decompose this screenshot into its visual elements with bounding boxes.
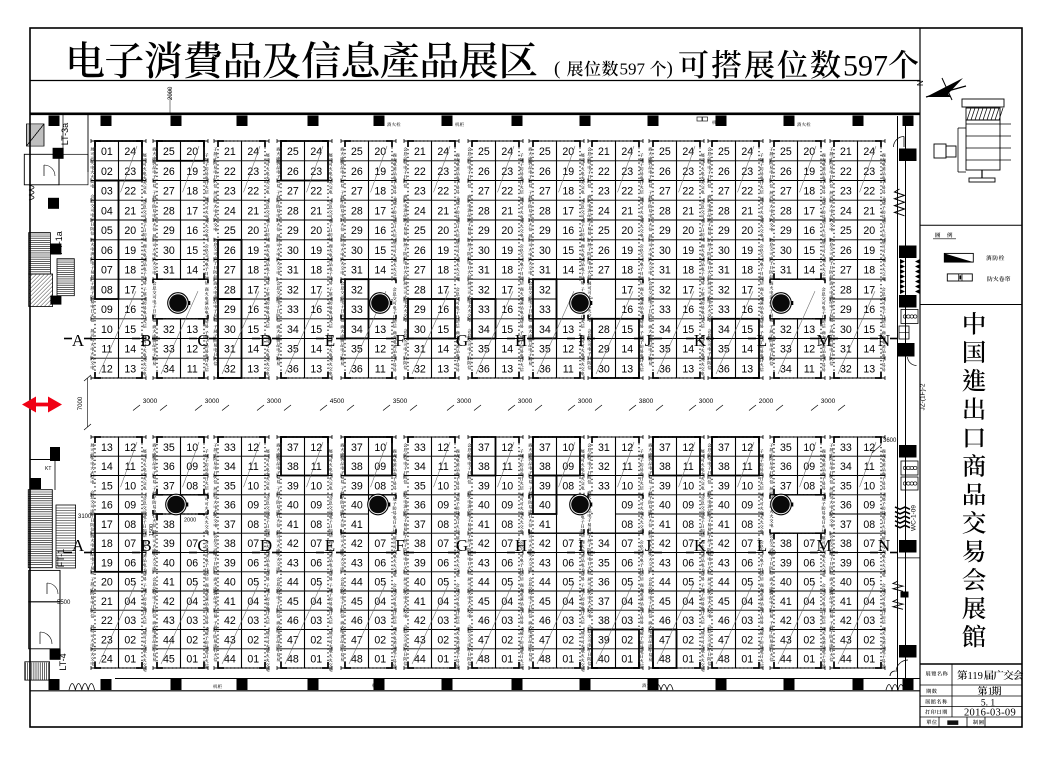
svg-text:25: 25 [780,146,792,158]
svg-text:597: 597 [620,60,646,79]
svg-text:14: 14 [863,344,875,356]
svg-text:23: 23 [101,634,113,646]
svg-text:41: 41 [478,519,490,531]
svg-text:18: 18 [310,265,322,277]
svg-text:26: 26 [478,166,490,178]
svg-text:06: 06 [803,557,815,569]
svg-text:34: 34 [598,538,610,550]
svg-text:15: 15 [247,324,259,336]
svg-text:16: 16 [310,304,322,316]
svg-text:13: 13 [741,364,753,376]
svg-text:3000: 3000 [518,398,533,405]
svg-text:21: 21 [840,146,852,158]
svg-text:13: 13 [101,442,113,454]
svg-text:LT-4: LT-4 [58,653,68,670]
svg-text:14: 14 [186,265,198,277]
svg-text:39: 39 [840,557,852,569]
svg-text:39: 39 [351,480,363,492]
svg-text:07: 07 [621,538,633,550]
svg-text:11: 11 [563,364,574,376]
svg-text:29: 29 [598,344,610,356]
svg-text:06: 06 [186,557,198,569]
svg-text:33: 33 [539,304,551,316]
svg-text:10: 10 [437,480,449,492]
svg-text:37: 37 [539,442,551,454]
svg-text:N: N [878,536,890,555]
svg-text:): ) [667,59,673,80]
svg-text:19: 19 [310,245,322,257]
svg-text:32: 32 [780,324,792,336]
svg-text:10: 10 [310,480,322,492]
svg-text:06: 06 [863,557,875,569]
svg-text:18: 18 [124,265,136,277]
svg-text:31: 31 [539,265,551,277]
svg-text:18: 18 [682,265,694,277]
svg-text:31: 31 [478,265,490,277]
svg-text:02: 02 [621,634,633,646]
svg-text:32: 32 [659,285,671,297]
svg-text:(: ( [554,59,560,80]
svg-text:42: 42 [351,538,363,550]
svg-text:38: 38 [659,461,671,473]
svg-text:46: 46 [718,615,730,627]
svg-text:32: 32 [478,285,490,297]
svg-text:22: 22 [101,615,113,627]
svg-text:26: 26 [539,166,551,178]
svg-text:29: 29 [224,304,236,316]
svg-text:10: 10 [124,480,136,492]
svg-text:29: 29 [659,225,671,237]
svg-text:10: 10 [863,480,875,492]
svg-text:06: 06 [101,245,113,257]
svg-text:25: 25 [287,146,299,158]
svg-text:29: 29 [840,304,852,316]
svg-text:46: 46 [539,615,551,627]
svg-text:LT-3a: LT-3a [60,123,70,145]
svg-text:09: 09 [741,500,753,512]
svg-text:07: 07 [863,538,875,550]
svg-text:22: 22 [414,166,426,178]
svg-text:26: 26 [718,166,730,178]
svg-text:1: 1 [988,687,993,698]
svg-text:36: 36 [840,500,852,512]
svg-text:32: 32 [598,461,610,473]
svg-text:36: 36 [598,577,610,589]
svg-text:27: 27 [780,186,792,198]
svg-text:35: 35 [718,344,730,356]
svg-text:07: 07 [101,265,113,277]
svg-text:08: 08 [562,480,574,492]
svg-text:3800: 3800 [639,398,654,405]
svg-text:28: 28 [840,285,852,297]
svg-text:38: 38 [598,615,610,627]
svg-text:31: 31 [163,265,175,277]
svg-text:38: 38 [163,519,175,531]
svg-text:42: 42 [287,538,299,550]
svg-text:30: 30 [718,245,730,257]
svg-text:26: 26 [780,166,792,178]
svg-text:A: A [72,331,85,350]
svg-text:04: 04 [310,596,322,608]
svg-text:40: 40 [539,500,551,512]
svg-text:34: 34 [478,324,490,336]
svg-text:10: 10 [186,442,198,454]
svg-text:22: 22 [741,186,753,198]
svg-text:04: 04 [682,596,694,608]
svg-text:21: 21 [741,206,753,218]
svg-text:07: 07 [803,538,815,550]
svg-text:44: 44 [539,577,551,589]
svg-text:N: N [916,80,925,86]
svg-text:34: 34 [224,461,236,473]
svg-text:39: 39 [780,557,792,569]
svg-text:16: 16 [741,304,753,316]
svg-text:14: 14 [247,344,259,356]
svg-text:15: 15 [124,324,136,336]
svg-text:25: 25 [539,146,551,158]
svg-text:37: 37 [163,480,175,492]
svg-text:01: 01 [310,654,322,666]
svg-text:31: 31 [414,344,426,356]
svg-text:43: 43 [224,634,236,646]
svg-text:28: 28 [414,285,426,297]
svg-text:L: L [757,536,767,555]
svg-text:39: 39 [163,538,175,550]
svg-text:47: 47 [478,634,490,646]
svg-text:34: 34 [414,461,426,473]
svg-text:45: 45 [659,596,671,608]
svg-text:35: 35 [414,480,426,492]
svg-text:08: 08 [501,519,513,531]
svg-text:H: H [515,536,527,555]
svg-text:44: 44 [478,577,490,589]
svg-text:27: 27 [539,186,551,198]
svg-text:32: 32 [163,324,175,336]
svg-text:21: 21 [682,206,694,218]
svg-text:27: 27 [414,265,426,277]
svg-text:29: 29 [351,225,363,237]
svg-text:3500: 3500 [393,398,408,405]
svg-text:08: 08 [186,480,198,492]
svg-text:46: 46 [659,615,671,627]
svg-text:04: 04 [186,596,198,608]
svg-text:19: 19 [101,557,113,569]
svg-text:3000: 3000 [143,398,158,405]
svg-text:20: 20 [101,577,113,589]
svg-text:45: 45 [478,596,490,608]
svg-text:41: 41 [287,519,299,531]
svg-text:02: 02 [741,634,753,646]
svg-text:04: 04 [124,596,136,608]
svg-text:14: 14 [310,344,322,356]
svg-text:01: 01 [741,654,753,666]
svg-text:2000: 2000 [184,518,196,524]
svg-text:26: 26 [659,166,671,178]
svg-text:18: 18 [803,186,815,198]
svg-text:40: 40 [351,500,363,512]
svg-text:22: 22 [598,166,610,178]
svg-text:29: 29 [287,225,299,237]
svg-text:20: 20 [741,225,753,237]
svg-text:10: 10 [803,442,815,454]
svg-text:33: 33 [351,304,363,316]
svg-text:13: 13 [247,364,259,376]
svg-text:01: 01 [374,654,386,666]
svg-text:3000: 3000 [699,398,714,405]
svg-text:07: 07 [310,538,322,550]
svg-text:41: 41 [718,519,730,531]
svg-text:28: 28 [351,206,363,218]
svg-text:27: 27 [287,186,299,198]
svg-text:21: 21 [501,206,513,218]
svg-text:32: 32 [539,285,551,297]
svg-text:29: 29 [478,225,490,237]
svg-text:02: 02 [124,634,136,646]
svg-text:40: 40 [840,577,852,589]
svg-text:01: 01 [437,654,449,666]
svg-text:02: 02 [682,634,694,646]
svg-text:34: 34 [840,461,852,473]
svg-text:42: 42 [840,615,852,627]
svg-text:04: 04 [741,596,753,608]
svg-text:20: 20 [310,225,322,237]
svg-text:10: 10 [621,480,633,492]
svg-text:16: 16 [437,304,449,316]
svg-text:3600: 3600 [883,438,897,444]
svg-text:13: 13 [501,364,513,376]
svg-text:09: 09 [863,500,875,512]
svg-text:22: 22 [224,166,236,178]
svg-text:13: 13 [863,364,875,376]
svg-text:16: 16 [803,225,815,237]
svg-text:07: 07 [437,538,449,550]
svg-text:12: 12 [374,344,386,356]
svg-text:22: 22 [621,186,633,198]
svg-text:43: 43 [780,634,792,646]
svg-text:37: 37 [780,480,792,492]
svg-text:32: 32 [287,285,299,297]
svg-text:40: 40 [478,500,490,512]
svg-text:24: 24 [840,206,852,218]
svg-text:07: 07 [374,538,386,550]
svg-text:D: D [260,331,272,350]
svg-text:10: 10 [501,480,513,492]
svg-text:15: 15 [186,245,198,257]
svg-text:16: 16 [562,225,574,237]
svg-text:33: 33 [718,304,730,316]
svg-text:43: 43 [718,557,730,569]
svg-text:33: 33 [840,442,852,454]
svg-text:30: 30 [351,245,363,257]
svg-text:I: I [578,331,584,350]
svg-text:L: L [757,331,767,350]
svg-text:31: 31 [840,344,852,356]
svg-text:38: 38 [780,538,792,550]
svg-text:26: 26 [224,245,236,257]
svg-text:44: 44 [659,577,671,589]
svg-text:C: C [197,536,208,555]
svg-text:01: 01 [247,654,259,666]
svg-text:25: 25 [598,225,610,237]
svg-text:14: 14 [741,344,753,356]
svg-text:18: 18 [186,186,198,198]
svg-text:23: 23 [414,186,426,198]
svg-text:45: 45 [287,596,299,608]
svg-text:25: 25 [163,146,175,158]
svg-text:07: 07 [124,538,136,550]
svg-text:08: 08 [741,519,753,531]
svg-text:25: 25 [659,146,671,158]
svg-text:03: 03 [101,186,113,198]
svg-text:08: 08 [124,519,136,531]
svg-text:21: 21 [124,206,136,218]
svg-text:42: 42 [718,538,730,550]
svg-text:17: 17 [101,519,113,531]
svg-text:38: 38 [478,461,490,473]
svg-text:40: 40 [224,577,236,589]
svg-text:01: 01 [124,654,136,666]
svg-text:19: 19 [863,245,875,257]
svg-text:32: 32 [351,285,363,297]
svg-text:15: 15 [374,245,386,257]
svg-text:33: 33 [478,304,490,316]
svg-text:37: 37 [718,442,730,454]
svg-text:09: 09 [682,500,694,512]
svg-text:47: 47 [659,634,671,646]
svg-text:14: 14 [803,265,815,277]
svg-text:03: 03 [682,615,694,627]
svg-text:12: 12 [247,442,259,454]
svg-text:27: 27 [840,265,852,277]
svg-text:09: 09 [101,304,113,316]
svg-text:12: 12 [310,442,322,454]
svg-text:39: 39 [224,557,236,569]
svg-text:F: F [395,331,404,350]
svg-text:01: 01 [501,654,513,666]
svg-text:35: 35 [780,442,792,454]
svg-text:15: 15 [562,245,574,257]
svg-text:19: 19 [437,245,449,257]
svg-text:03: 03 [437,615,449,627]
svg-text:K: K [694,536,707,555]
svg-text:29: 29 [163,225,175,237]
svg-text:04: 04 [803,596,815,608]
svg-text:22: 22 [247,186,259,198]
svg-text:21: 21 [598,146,610,158]
svg-text:41: 41 [659,519,671,531]
svg-text:24: 24 [598,206,610,218]
svg-text:3000: 3000 [457,398,472,405]
svg-text:07: 07 [562,538,574,550]
svg-text:3000: 3000 [267,398,282,405]
svg-text:08: 08 [310,519,322,531]
svg-text:09: 09 [437,500,449,512]
svg-text:10: 10 [247,480,259,492]
svg-text:16: 16 [186,225,198,237]
svg-text:18: 18 [501,265,513,277]
svg-text:12: 12 [501,442,513,454]
svg-text:40: 40 [780,577,792,589]
svg-text:09: 09 [621,500,633,512]
svg-text:35: 35 [840,480,852,492]
svg-text:20: 20 [501,225,513,237]
svg-text:21: 21 [621,206,633,218]
svg-text:3100: 3100 [78,514,92,520]
svg-text:29: 29 [780,225,792,237]
svg-text:08: 08 [374,480,386,492]
svg-text:43: 43 [840,634,852,646]
svg-text:25: 25 [478,146,490,158]
svg-text:02: 02 [501,634,513,646]
svg-text:25: 25 [414,225,426,237]
svg-text:E: E [325,331,335,350]
svg-text:31: 31 [718,265,730,277]
svg-text:41: 41 [840,596,852,608]
svg-text:13: 13 [374,324,386,336]
svg-text:30: 30 [840,324,852,336]
svg-text:08: 08 [621,519,633,531]
svg-text:3000: 3000 [578,398,593,405]
svg-text:02: 02 [437,634,449,646]
svg-text:22: 22 [437,186,449,198]
svg-text:28: 28 [539,206,551,218]
svg-text:22: 22 [682,186,694,198]
svg-text:19: 19 [124,245,136,257]
svg-text:39: 39 [718,480,730,492]
svg-text:12: 12 [621,442,633,454]
svg-text:16: 16 [101,500,113,512]
svg-text:38: 38 [224,538,236,550]
svg-text:40: 40 [414,577,426,589]
svg-text:38: 38 [414,538,426,550]
svg-text:43: 43 [539,557,551,569]
svg-text:17: 17 [186,206,198,218]
svg-text:08: 08 [803,480,815,492]
svg-text:31: 31 [287,265,299,277]
svg-text:10: 10 [562,442,574,454]
svg-text:08: 08 [247,519,259,531]
svg-text:39: 39 [598,634,610,646]
svg-text:44: 44 [351,577,363,589]
svg-text:31: 31 [351,265,363,277]
svg-text:WC-1-09: WC-1-09 [911,505,918,531]
svg-text:43: 43 [163,615,175,627]
svg-text:06: 06 [374,557,386,569]
svg-text:11: 11 [804,364,815,376]
svg-text:28: 28 [659,206,671,218]
svg-text:G: G [456,331,468,350]
svg-text:20: 20 [437,225,449,237]
svg-text:4500: 4500 [330,398,345,405]
svg-text:30: 30 [224,324,236,336]
svg-text:12: 12 [562,344,574,356]
svg-text:35: 35 [598,557,610,569]
svg-text:20: 20 [621,225,633,237]
svg-text:45: 45 [351,596,363,608]
svg-text:03: 03 [186,615,198,627]
svg-text:15: 15 [863,324,875,336]
svg-text:18: 18 [247,265,259,277]
svg-text:E: E [325,536,335,555]
svg-text:N: N [878,331,890,350]
svg-text:28: 28 [780,206,792,218]
svg-text:597: 597 [843,50,888,83]
svg-text:36: 36 [414,500,426,512]
svg-text:04: 04 [101,206,113,218]
svg-text:33: 33 [414,442,426,454]
svg-text:26: 26 [414,245,426,257]
svg-text:34: 34 [659,324,671,336]
